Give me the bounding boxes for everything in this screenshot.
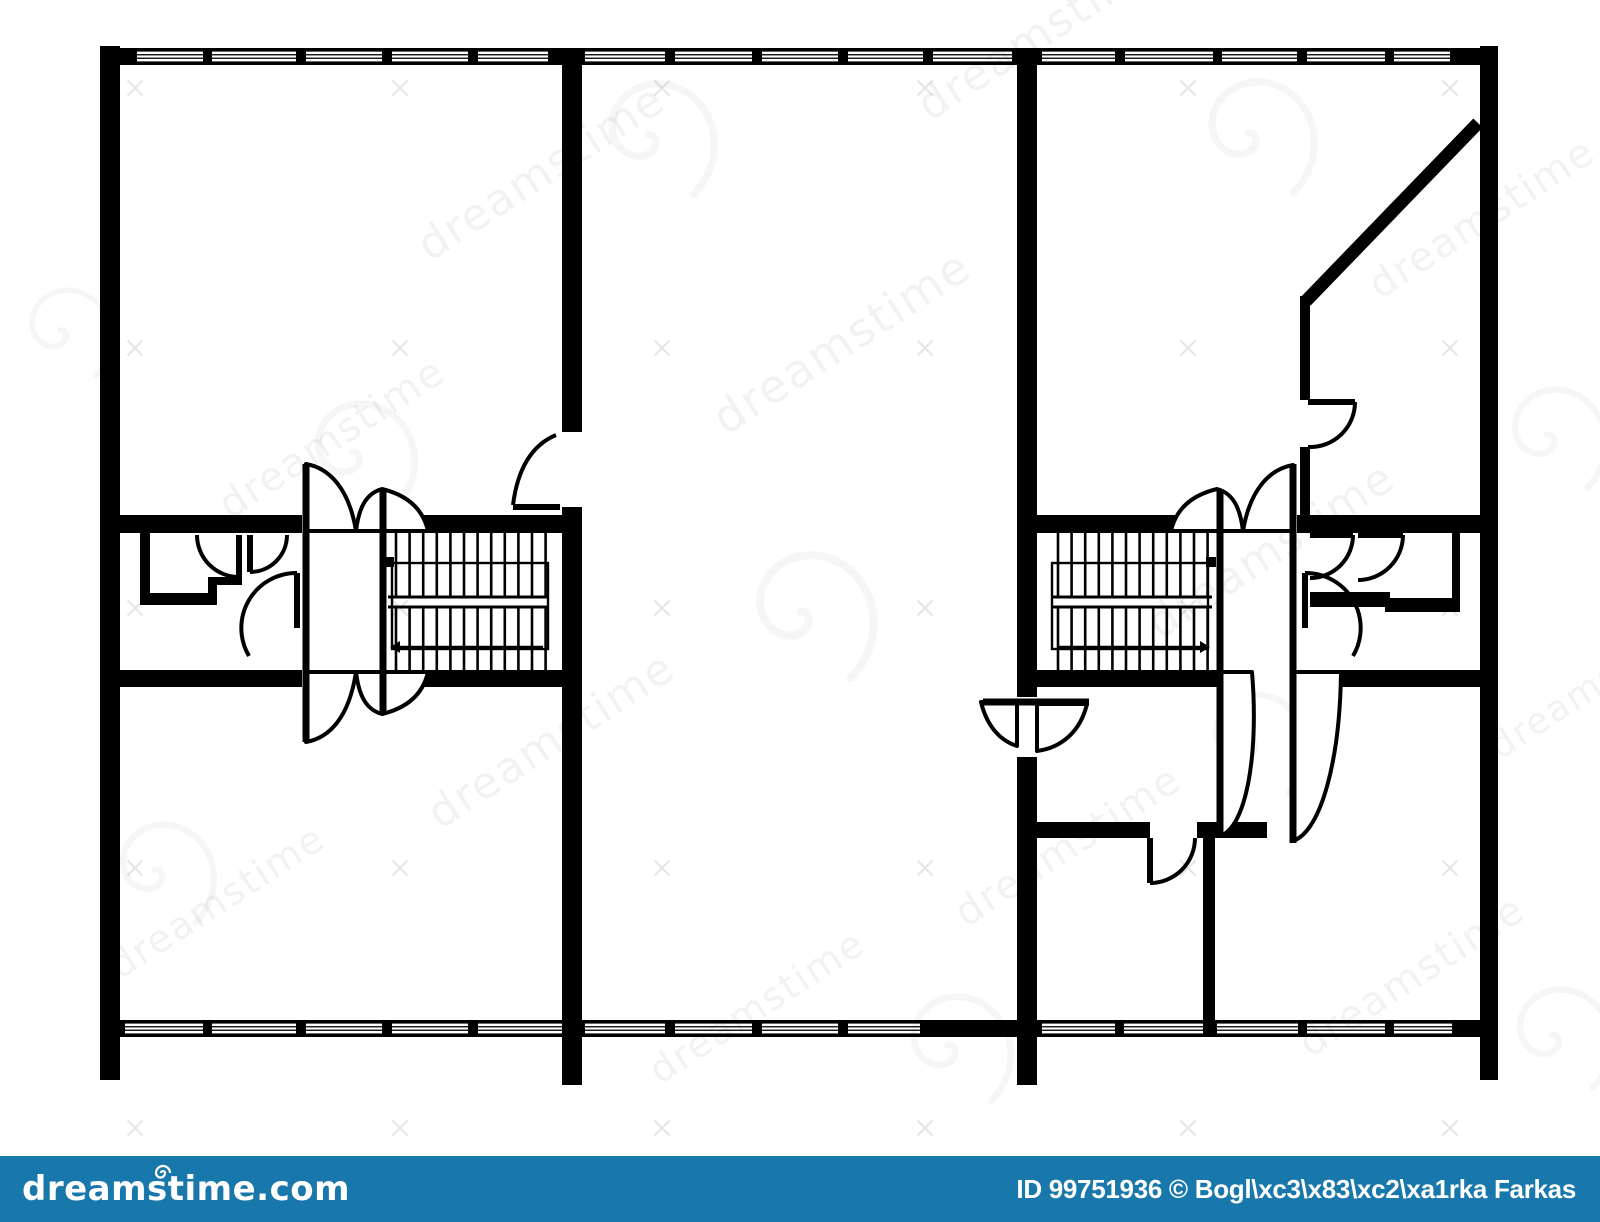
image-credit: ID 99751936 © Bogl\xc3\x83\xc2\xa1rka Fa… bbox=[1016, 1174, 1576, 1205]
vestibule-left-door-2 bbox=[250, 535, 287, 572]
stock-photo-preview: dreamstimedreamstimedreamstimedreamstime… bbox=[0, 0, 1600, 1222]
svg-text:dreamstime: dreamstime bbox=[908, 0, 1174, 131]
floor-plan-svg: dreamstimedreamstimedreamstimedreamstime… bbox=[0, 0, 1600, 1156]
swing-door-unit-divider-right bbox=[981, 702, 1089, 751]
unit-divider-left-door bbox=[513, 435, 560, 507]
brand-text: dreamstime.com bbox=[22, 1169, 350, 1209]
interior-room-door-right bbox=[1150, 838, 1195, 883]
svg-text:dreamstime: dreamstime bbox=[408, 74, 674, 272]
double-swing-door-left bbox=[306, 464, 428, 742]
vestibule-left-door-1 bbox=[197, 535, 239, 577]
vestibule-right-door-3 bbox=[1305, 573, 1361, 656]
dreamstime-logo: dreamstime.com bbox=[22, 1156, 350, 1222]
brand-spiral-icon bbox=[150, 1162, 172, 1184]
svg-text:dreamstime: dreamstime bbox=[641, 920, 873, 1092]
footer-bar: dreamstime.com ID 99751936 © Bogl\xc3\x8… bbox=[0, 1156, 1600, 1222]
svg-text:dreamstime: dreamstime bbox=[946, 756, 1189, 936]
svg-text:dreamstime: dreamstime bbox=[101, 815, 333, 987]
staircase-left bbox=[384, 533, 548, 670]
vestibule-left-door-3 bbox=[241, 573, 297, 656]
diagonal-room-door bbox=[1308, 402, 1355, 447]
vestibule-right-door-2 bbox=[1358, 535, 1403, 580]
svg-text:dreamstime: dreamstime bbox=[703, 239, 981, 446]
svg-text:dreamstime: dreamstime bbox=[1483, 605, 1600, 768]
